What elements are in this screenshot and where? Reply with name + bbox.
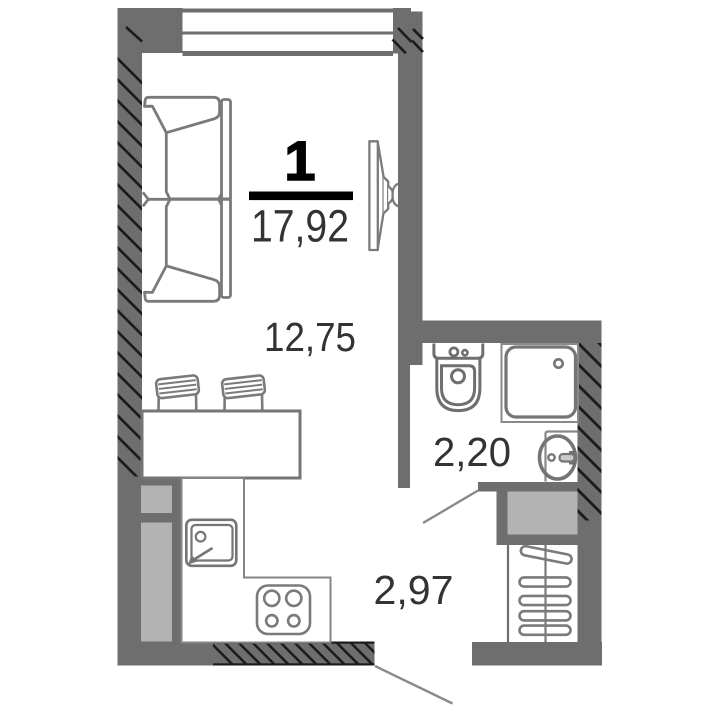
svg-text:2,20: 2,20 (433, 429, 511, 475)
svg-text:17,92: 17,92 (251, 200, 349, 251)
svg-text:2,97: 2,97 (374, 567, 454, 613)
svg-text:12,75: 12,75 (264, 314, 356, 360)
svg-text:1: 1 (284, 129, 315, 192)
